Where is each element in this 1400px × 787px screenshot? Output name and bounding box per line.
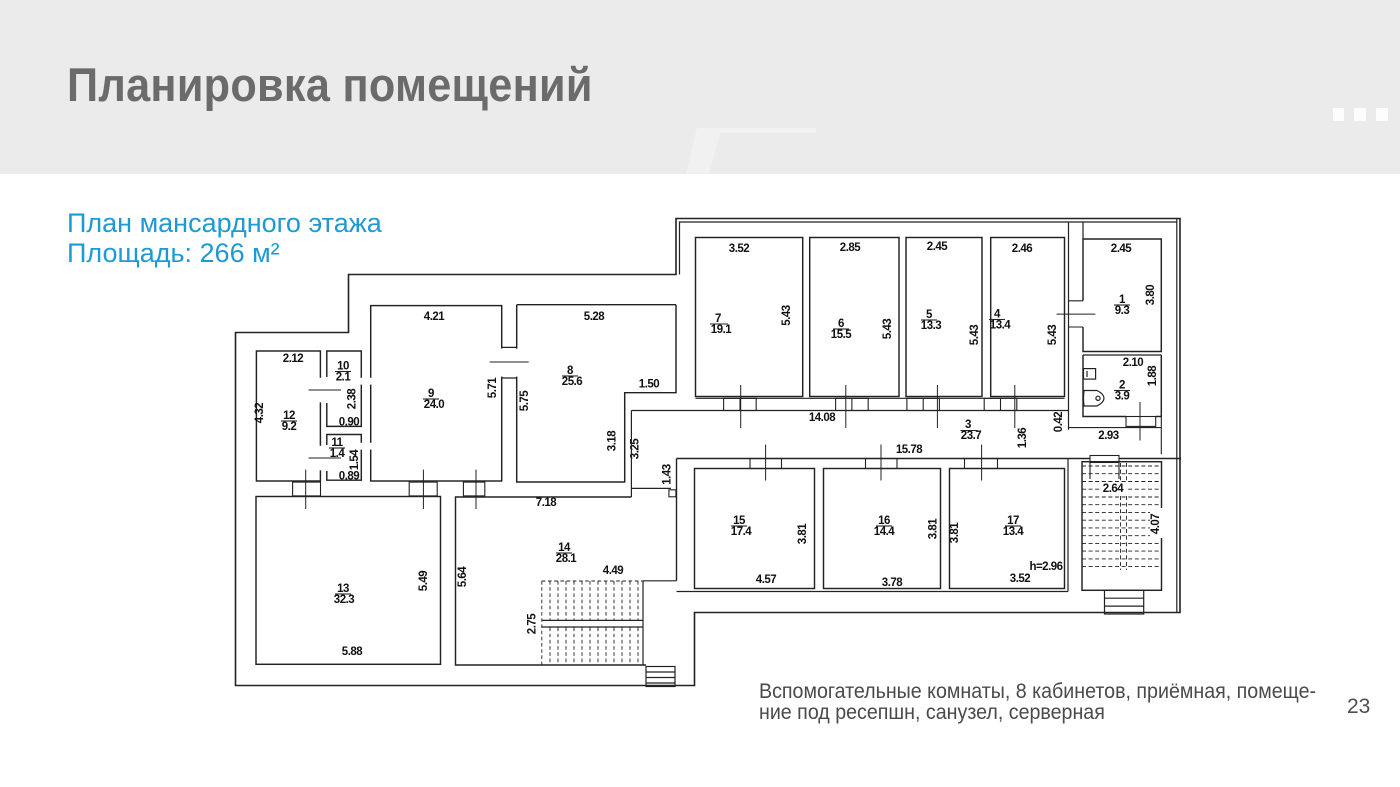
- svg-text:23.7: 23.7: [961, 430, 981, 442]
- svg-text:2.93: 2.93: [1098, 430, 1118, 442]
- svg-text:14.08: 14.08: [809, 412, 836, 424]
- svg-text:1.88: 1.88: [1147, 365, 1159, 386]
- svg-text:7.18: 7.18: [536, 497, 557, 509]
- svg-text:13.4: 13.4: [990, 320, 1011, 332]
- svg-text:2.75: 2.75: [527, 613, 539, 634]
- svg-text:3.78: 3.78: [882, 577, 903, 589]
- svg-text:9.2: 9.2: [282, 421, 297, 433]
- svg-text:3.52: 3.52: [729, 243, 749, 255]
- svg-text:5.43: 5.43: [781, 305, 793, 325]
- svg-text:4.21: 4.21: [424, 311, 445, 323]
- svg-text:2.45: 2.45: [927, 241, 948, 253]
- svg-text:5.43: 5.43: [1047, 325, 1059, 345]
- svg-text:3.81: 3.81: [797, 523, 809, 544]
- svg-text:0.90: 0.90: [339, 417, 359, 429]
- svg-text:15.5: 15.5: [831, 329, 852, 341]
- svg-text:25.6: 25.6: [562, 376, 582, 388]
- svg-text:h=2.96: h=2.96: [1029, 561, 1062, 573]
- svg-text:1.54: 1.54: [349, 449, 361, 470]
- svg-text:3.9: 3.9: [1115, 391, 1130, 403]
- svg-text:3.81: 3.81: [928, 518, 940, 539]
- svg-text:1.50: 1.50: [639, 379, 659, 391]
- svg-text:4.57: 4.57: [756, 574, 776, 586]
- svg-text:5.28: 5.28: [584, 311, 605, 323]
- svg-text:4.49: 4.49: [603, 565, 623, 577]
- svg-text:13.4: 13.4: [1003, 526, 1024, 538]
- svg-text:2.64: 2.64: [1103, 483, 1124, 495]
- svg-text:9.3: 9.3: [1115, 305, 1130, 317]
- svg-text:5.49: 5.49: [418, 571, 430, 591]
- svg-text:14.4: 14.4: [874, 526, 895, 538]
- svg-text:2.45: 2.45: [1111, 243, 1132, 255]
- svg-text:0.89: 0.89: [339, 471, 359, 483]
- svg-text:2.46: 2.46: [1012, 243, 1032, 255]
- svg-text:3.52: 3.52: [1010, 573, 1030, 585]
- svg-text:2.10: 2.10: [1123, 357, 1143, 369]
- svg-text:3.80: 3.80: [1145, 285, 1157, 305]
- svg-text:5.43: 5.43: [882, 319, 894, 339]
- svg-text:2.85: 2.85: [840, 242, 861, 254]
- svg-text:4.32: 4.32: [254, 403, 266, 423]
- svg-text:2.1: 2.1: [336, 372, 352, 384]
- svg-text:0.42: 0.42: [1053, 412, 1065, 432]
- svg-text:3.18: 3.18: [607, 430, 619, 451]
- svg-text:32.3: 32.3: [334, 594, 354, 606]
- svg-text:24.0: 24.0: [424, 399, 444, 411]
- svg-text:5.43: 5.43: [969, 325, 981, 345]
- svg-text:5.64: 5.64: [457, 566, 469, 587]
- svg-text:2.38: 2.38: [347, 388, 359, 409]
- svg-text:19.1: 19.1: [711, 324, 732, 336]
- svg-text:28.1: 28.1: [556, 553, 577, 565]
- svg-text:1.36: 1.36: [1017, 428, 1029, 448]
- svg-text:5.88: 5.88: [342, 646, 363, 658]
- svg-text:5.75: 5.75: [519, 390, 531, 411]
- svg-text:5.71: 5.71: [487, 377, 499, 398]
- svg-text:2.12: 2.12: [283, 353, 303, 365]
- svg-text:1.43: 1.43: [662, 464, 674, 484]
- svg-text:3.81: 3.81: [949, 522, 961, 543]
- svg-text:13.3: 13.3: [921, 320, 941, 332]
- svg-text:17.4: 17.4: [731, 526, 752, 538]
- svg-text:4.07: 4.07: [1150, 514, 1162, 534]
- svg-text:15.78: 15.78: [896, 444, 923, 456]
